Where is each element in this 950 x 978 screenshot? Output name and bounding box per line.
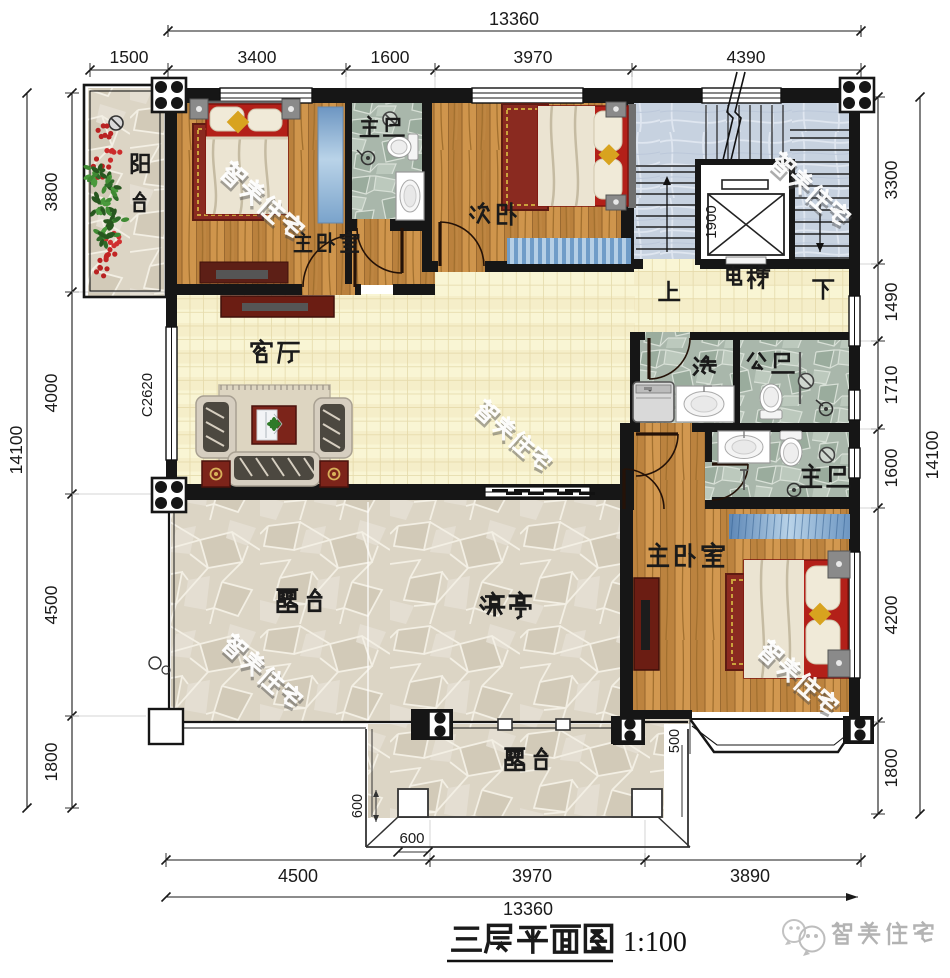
svg-text:600: 600 [350, 794, 366, 818]
svg-text:3800: 3800 [41, 172, 61, 211]
svg-text:500: 500 [667, 729, 683, 753]
svg-text:1:100: 1:100 [623, 927, 687, 958]
svg-text:1710: 1710 [881, 365, 901, 404]
svg-text:14100: 14100 [922, 430, 942, 479]
svg-text:4390: 4390 [727, 47, 766, 67]
svg-text:13360: 13360 [489, 9, 539, 29]
svg-text:C2620: C2620 [139, 373, 156, 417]
svg-text:1800: 1800 [41, 742, 61, 781]
svg-text:4500: 4500 [278, 866, 318, 886]
svg-text:3890: 3890 [730, 866, 770, 886]
svg-text:3970: 3970 [512, 866, 552, 886]
svg-text:1490: 1490 [881, 282, 901, 321]
svg-text:3970: 3970 [514, 47, 553, 67]
svg-text:4500: 4500 [41, 585, 61, 624]
svg-text:13360: 13360 [503, 899, 553, 919]
svg-text:3300: 3300 [881, 160, 901, 199]
svg-text:14100: 14100 [6, 425, 26, 474]
svg-text:1900: 1900 [703, 205, 720, 238]
svg-text:600: 600 [399, 830, 424, 847]
svg-text:1500: 1500 [110, 47, 149, 67]
svg-text:4000: 4000 [41, 373, 61, 412]
svg-text:3400: 3400 [238, 47, 277, 67]
svg-text:4200: 4200 [881, 595, 901, 634]
svg-text:1600: 1600 [371, 47, 410, 67]
svg-text:1800: 1800 [881, 748, 901, 787]
svg-text:1600: 1600 [881, 448, 901, 487]
